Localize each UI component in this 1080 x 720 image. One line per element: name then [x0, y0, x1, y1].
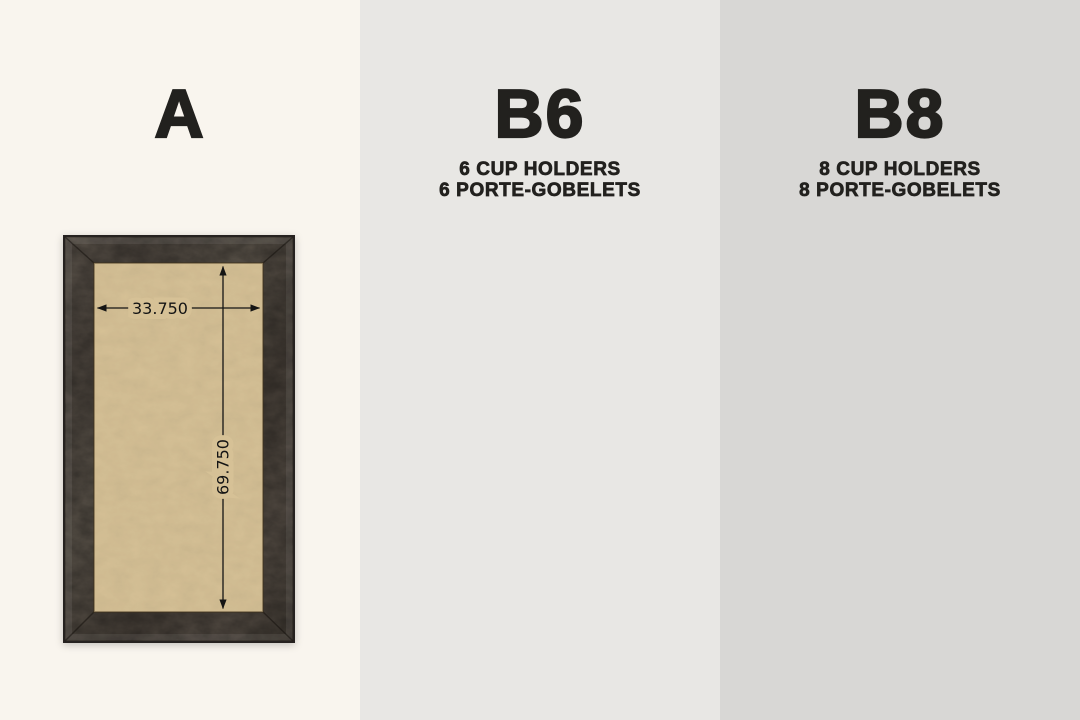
- table-a-width-label: 33.750: [132, 299, 188, 318]
- panel-b8: B8 8 CUP HOLDERS 8 PORTE-GOBELETS: [720, 0, 1080, 720]
- panel-b6: B6 6 CUP HOLDERS 6 PORTE-GOBELETS: [360, 0, 720, 720]
- panel-b6-title: B6: [360, 80, 720, 148]
- table-a-height-label: 69.750: [214, 439, 233, 495]
- panel-b6-subtitle-line2: 6 PORTE-GOBELETS: [360, 180, 720, 201]
- panel-b8-title: B8: [720, 80, 1080, 148]
- panel-b6-subtitle: 6 CUP HOLDERS 6 PORTE-GOBELETS: [360, 159, 720, 201]
- panel-a-title: A: [0, 80, 360, 148]
- panel-b8-subtitle: 8 CUP HOLDERS 8 PORTE-GOBELETS: [720, 159, 1080, 201]
- panel-a: A: [0, 0, 360, 720]
- panel-b8-subtitle-line1: 8 CUP HOLDERS: [720, 159, 1080, 180]
- table-a-drawing: 33.750 69.750: [63, 235, 295, 643]
- panel-b8-subtitle-line2: 8 PORTE-GOBELETS: [720, 180, 1080, 201]
- panel-b6-subtitle-line1: 6 CUP HOLDERS: [360, 159, 720, 180]
- comparison-diagram: A: [0, 0, 1080, 720]
